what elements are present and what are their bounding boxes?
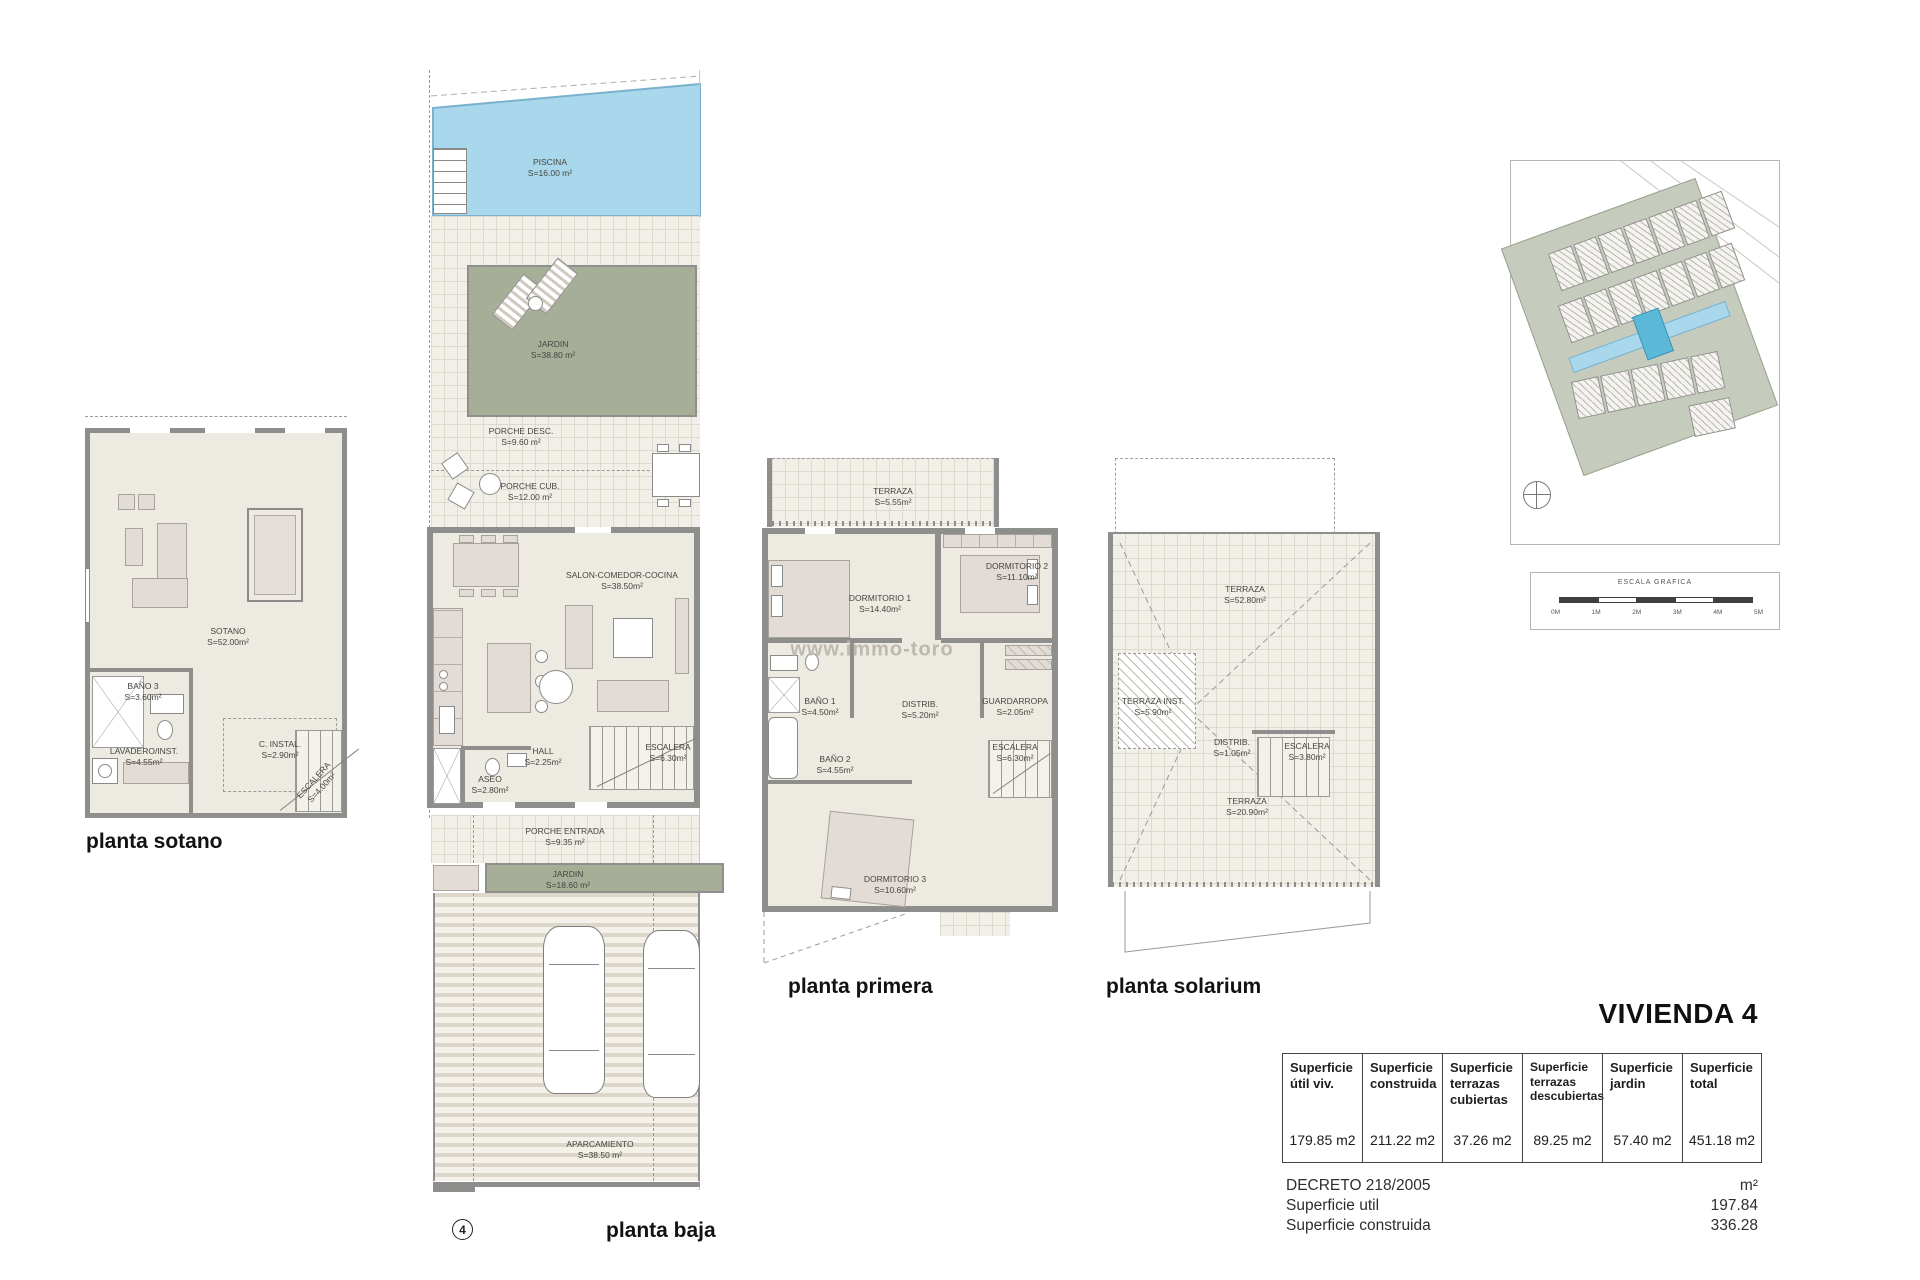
wall-top: [1112, 532, 1380, 534]
room-area: S=3.60m²: [124, 692, 161, 703]
wardrobe: [943, 534, 1052, 548]
table-column: Superficie jardin 57.40 m2: [1602, 1054, 1682, 1162]
plan-solarium: [1100, 455, 1392, 1000]
column-header: Superficie construida: [1363, 1054, 1442, 1122]
door-opening: [575, 527, 611, 533]
floorplan-sheet: SOTANO S=52.00m² BAÑO 3 S=3.60m² LAVADER…: [0, 0, 1920, 1280]
room-name: SALON-COMEDOR-COCINA: [566, 570, 678, 581]
scale-tick: 0M: [1551, 609, 1560, 616]
decreto-value: 197.84: [1711, 1196, 1758, 1216]
chair: [657, 444, 669, 452]
rug: [613, 618, 653, 658]
room-area: S=38.80 m²: [531, 350, 575, 361]
room-name: TERRAZA: [1224, 584, 1266, 595]
scale-ticks: 0M 1M 2M 3M 4M 5M: [1551, 609, 1763, 616]
room-name: GUARDARROPA: [982, 696, 1048, 707]
boundary-dashed: [653, 815, 654, 863]
partition: [941, 638, 1058, 643]
pillow: [771, 565, 783, 587]
aseo-wall: [461, 746, 465, 804]
window-gap: [205, 428, 255, 433]
cooktop: [439, 706, 455, 734]
decreto-row: DECRETO 218/2005 m²: [1286, 1176, 1758, 1196]
kitchen-sink: [439, 682, 448, 691]
room-name: DISTRIB.: [1213, 737, 1250, 748]
property-line: [85, 416, 347, 417]
wall-bottom: [427, 802, 700, 808]
plan-baja: [427, 58, 700, 1200]
chair: [481, 589, 496, 597]
chair: [459, 535, 474, 543]
dining-table: [453, 543, 519, 587]
room-name: DORMITORIO 1: [849, 593, 911, 604]
room-label: JARDIN S=38.80 m²: [531, 339, 575, 361]
chair: [459, 589, 474, 597]
room-name: APARCAMIENTO: [566, 1139, 633, 1150]
room-label: DISTRIB. S=1.05m²: [1213, 737, 1250, 759]
column-value: 179.85 m2: [1283, 1122, 1362, 1162]
armchair: [118, 494, 135, 510]
scale-segment: [1714, 597, 1753, 603]
room-area: S=10.60m²: [864, 885, 926, 896]
room-name: ASEO: [471, 774, 508, 785]
stair-wall: [1252, 730, 1335, 734]
plot-step: [433, 1187, 475, 1192]
decreto-row: Superficie construida 336.28: [1286, 1216, 1758, 1236]
site-plan: [1510, 160, 1780, 545]
room-label: TERRAZA INST. S=5.90m²: [1122, 696, 1184, 718]
column-header: Superficie útil viv.: [1283, 1054, 1362, 1122]
table-column: Superficie útil viv. 179.85 m2: [1282, 1054, 1362, 1162]
chair: [481, 535, 496, 543]
room-label: SALON-COMEDOR-COCINA S=38.50m²: [566, 570, 678, 592]
column-header: Superficie jardin: [1603, 1054, 1682, 1122]
room-label: ESCALERA S=6.30m²: [992, 742, 1037, 764]
shower: [433, 748, 461, 804]
scale-tick: 3M: [1673, 609, 1682, 616]
chair: [503, 535, 518, 543]
column-value: 89.25 m2: [1523, 1122, 1602, 1162]
sofa: [597, 680, 669, 712]
column-header: Superficie total: [1683, 1054, 1761, 1122]
chair: [657, 499, 669, 507]
room-area: S=14.40m²: [849, 604, 911, 615]
rear-window-line: [549, 1050, 599, 1051]
door-opening: [575, 802, 607, 808]
room-name: JARDIN: [531, 339, 575, 350]
stool: [535, 650, 548, 663]
column-value: 211.22 m2: [1363, 1122, 1442, 1162]
windshield-line: [648, 968, 694, 969]
room-area: S=2.25m²: [524, 757, 561, 768]
pool-steps: [433, 148, 467, 214]
chair: [679, 444, 691, 452]
decreto-value: 336.28: [1711, 1216, 1758, 1236]
column-value: 37.26 m2: [1443, 1122, 1522, 1162]
pillow: [771, 595, 783, 617]
room-area: S=12.00 m²: [500, 492, 559, 503]
room-area: S=5.55m²: [873, 497, 913, 508]
room-label: BAÑO 3 S=3.60m²: [124, 681, 161, 703]
unit-title: VIVIENDA 4: [1480, 998, 1758, 1030]
sofa: [132, 578, 188, 608]
scale-segment: [1598, 597, 1637, 603]
scale-segment: [1675, 597, 1714, 603]
kitchen-island: [487, 643, 531, 713]
wall-right: [1052, 528, 1058, 912]
room-area: S=4.50m²: [801, 707, 838, 718]
table-column: Superficie total 451.18 m2: [1682, 1054, 1762, 1162]
room-label: DISTRIB. S=5.20m²: [901, 699, 938, 721]
surface-table: Superficie útil viv. 179.85 m2 Superfici…: [1282, 1053, 1762, 1163]
partition: [762, 780, 912, 784]
shower: [768, 677, 800, 713]
room-name: PORCHE DESC.: [489, 426, 554, 437]
column-value: 451.18 m2: [1683, 1122, 1761, 1162]
pool-graphic: [431, 78, 700, 218]
decreto-label: Superficie construida: [1286, 1216, 1431, 1236]
room-name: TERRAZA INST.: [1122, 696, 1184, 707]
room-label: SOTANO S=52.00m²: [207, 626, 249, 648]
room-name: BAÑO 3: [124, 681, 161, 692]
room-area: S=9.35 m²: [525, 837, 604, 848]
stool: [535, 700, 548, 713]
room-label: TERRAZA S=5.55m²: [873, 486, 913, 508]
room-area: S=6.30m²: [992, 753, 1037, 764]
terrace-edge-dashed: [772, 458, 994, 459]
room-label: APARCAMIENTO S=38.50 m²: [566, 1139, 633, 1161]
room-area: S=9.60 m²: [489, 437, 554, 448]
room-name: ESCALERA: [1284, 741, 1329, 752]
table-column: Superficie terrazas descubiertas 89.25 m…: [1522, 1054, 1602, 1162]
porch-table: [479, 473, 501, 495]
garden-table: [528, 296, 543, 311]
decreto-label: Superficie util: [1286, 1196, 1379, 1216]
room-name: JARDIN: [546, 869, 590, 880]
room-label: PORCHE CUB. S=12.00 m²: [500, 481, 559, 503]
room-name: DORMITORIO 3: [864, 874, 926, 885]
outdoor-dining-table: [652, 453, 700, 497]
table-column: Superficie terrazas cubiertas 37.26 m2: [1442, 1054, 1522, 1162]
plan-primera: [755, 455, 1065, 1005]
armchair: [138, 494, 155, 510]
chair: [679, 499, 691, 507]
room-area: S=52.80m²: [1224, 595, 1266, 606]
room-label: PORCHE ENTRADA S=9.35 m²: [525, 826, 604, 848]
watermark: www.immo-toro: [790, 639, 953, 662]
room-name: BAÑO 2: [816, 754, 853, 765]
room-label: JARDIN S=18.60 m²: [546, 869, 590, 891]
room-label: TERRAZA S=52.80m²: [1224, 584, 1266, 606]
side-table: [125, 528, 143, 566]
room-label: DORMITORIO 3 S=10.60m²: [864, 874, 926, 896]
room-name: C. INSTAL.: [259, 739, 301, 750]
closet: [1005, 645, 1052, 656]
room-area: S=5.20m²: [901, 710, 938, 721]
decreto-title: DECRETO 218/2005: [1286, 1176, 1430, 1196]
room-name: SOTANO: [207, 626, 249, 637]
chair: [503, 589, 518, 597]
room-name: DORMITORIO 2: [986, 561, 1048, 572]
room-area: S=6.30m²: [645, 753, 690, 764]
room-area: S=1.05m²: [1213, 748, 1250, 759]
scale-bar: ESCALA GRAFICA 0M 1M 2M 3M 4M 5M: [1530, 572, 1780, 630]
scale-segment: [1559, 597, 1598, 603]
planter: [433, 865, 479, 891]
column-value: 57.40 m2: [1603, 1122, 1682, 1162]
room-name: DISTRIB.: [901, 699, 938, 710]
plan-title-baja: planta baja: [606, 1219, 716, 1243]
room-name: PORCHE CUB.: [500, 481, 559, 492]
wall-right: [1375, 532, 1380, 887]
boundary-dashed: [473, 815, 474, 863]
column-header: Superficie terrazas descubiertas: [1523, 1054, 1602, 1122]
door-opening: [805, 528, 835, 534]
room-label: ASEO S=2.80m²: [471, 774, 508, 796]
room-area: S=4.55m²: [816, 765, 853, 776]
pillow: [830, 886, 851, 900]
terrace-ticks: [1112, 882, 1380, 887]
room-label: GUARDARROPA S=2.05m²: [982, 696, 1048, 718]
room-label: BAÑO 2 S=4.55m²: [816, 754, 853, 776]
room-name: PORCHE ENTRADA: [525, 826, 604, 837]
basement-window: [85, 568, 90, 623]
room-label: HALL S=2.25m²: [524, 746, 561, 768]
plan-title-solarium: planta solarium: [1106, 975, 1261, 999]
terrace-wall: [767, 458, 772, 527]
decreto-row: Superficie util 197.84: [1286, 1196, 1758, 1216]
bedroom-divider: [935, 528, 941, 640]
room-area: S=16.00 m²: [528, 168, 572, 179]
car: [643, 930, 700, 1098]
room-label: DORMITORIO 2 S=11.10m²: [986, 561, 1048, 583]
terrace-wall: [994, 458, 999, 527]
room-label: ESCALERA S=6.30m²: [645, 742, 690, 764]
wall-left: [1108, 532, 1113, 887]
table-column: Superficie construida 211.22 m2: [1362, 1054, 1442, 1162]
rear-window-line: [648, 1054, 694, 1055]
room-area: S=18.60 m²: [546, 880, 590, 891]
room-area: S=2.90m²: [259, 750, 301, 761]
room-label: ESCALERA S=3.80m²: [1284, 741, 1329, 763]
room-name: BAÑO 1: [801, 696, 838, 707]
garden-strip: [485, 863, 724, 893]
wall-top: [427, 527, 700, 533]
scale-segment: [1637, 597, 1676, 603]
pillow: [1027, 585, 1038, 605]
room-label: PORCHE DESC. S=9.60 m²: [489, 426, 554, 448]
column-header: Superficie terrazas cubiertas: [1443, 1054, 1522, 1122]
room-area: S=2.05m²: [982, 707, 1048, 718]
room-label: LAVADERO/INST. S=4.55m²: [110, 746, 178, 768]
closet: [1005, 659, 1052, 670]
round-table: [539, 670, 573, 704]
room-label: BAÑO 1 S=4.50m²: [801, 696, 838, 718]
room-label: PISCINA S=16.00 m²: [528, 157, 572, 179]
compass-cross: [1524, 494, 1550, 495]
room-name: TERRAZA: [1226, 796, 1268, 807]
room-label: C. INSTAL. S=2.90m²: [259, 739, 301, 761]
toilet: [157, 720, 173, 740]
decreto-block: DECRETO 218/2005 m² Superficie util 197.…: [1286, 1176, 1758, 1236]
pool-table: [247, 508, 303, 602]
boundary-dashed: [473, 893, 474, 1181]
scale-tick: 2M: [1632, 609, 1641, 616]
plan-title-primera: planta primera: [788, 975, 933, 999]
room-name: HALL: [524, 746, 561, 757]
room-area: S=38.50m²: [566, 581, 678, 592]
scale-title: ESCALA GRAFICA: [1531, 579, 1779, 586]
room-name: ESCALERA: [992, 742, 1037, 753]
room-area: S=11.10m²: [986, 572, 1048, 583]
car: [543, 926, 605, 1094]
garden-top: [467, 265, 697, 417]
tv-unit: [675, 598, 689, 674]
room-area: S=38.50 m²: [566, 1150, 633, 1161]
compass-needle: [1536, 482, 1537, 508]
scale-segments: [1559, 597, 1753, 603]
scale-tick: 5M: [1754, 609, 1763, 616]
aseo-wall: [461, 746, 531, 750]
windshield-line: [549, 964, 599, 965]
decreto-unit: m²: [1740, 1176, 1758, 1196]
room-area: S=5.90m²: [1122, 707, 1184, 718]
unit-badge: 4: [452, 1219, 473, 1240]
terrace-ticks: [772, 521, 994, 526]
partition-wall: [189, 668, 193, 818]
wall-bottom: [762, 906, 1058, 912]
room-area: S=2.80m²: [471, 785, 508, 796]
plan-title-sotano: planta sotano: [86, 830, 223, 854]
room-name: TERRAZA: [873, 486, 913, 497]
room-name: PISCINA: [528, 157, 572, 168]
room-label: TERRAZA S=20.90m²: [1226, 796, 1268, 818]
room-name: ESCALERA: [645, 742, 690, 753]
room-area: S=3.80m²: [1284, 752, 1329, 763]
bathtub: [768, 717, 798, 779]
kitchen-sink: [439, 670, 448, 679]
partition-wall: [85, 668, 192, 672]
wall-right: [694, 527, 700, 808]
room-area: S=4.55m²: [110, 757, 178, 768]
room-area: S=20.90m²: [1226, 807, 1268, 818]
scale-tick: 4M: [1713, 609, 1722, 616]
door-opening: [483, 802, 515, 808]
cabinet: [565, 605, 593, 669]
window-gap: [285, 428, 325, 433]
north-compass-icon: [1523, 481, 1551, 509]
room-area: S=52.00m²: [207, 637, 249, 648]
room-label: DORMITORIO 1 S=14.40m²: [849, 593, 911, 615]
scale-tick: 1M: [1592, 609, 1601, 616]
room-name: LAVADERO/INST.: [110, 746, 178, 757]
window-gap: [130, 428, 170, 433]
